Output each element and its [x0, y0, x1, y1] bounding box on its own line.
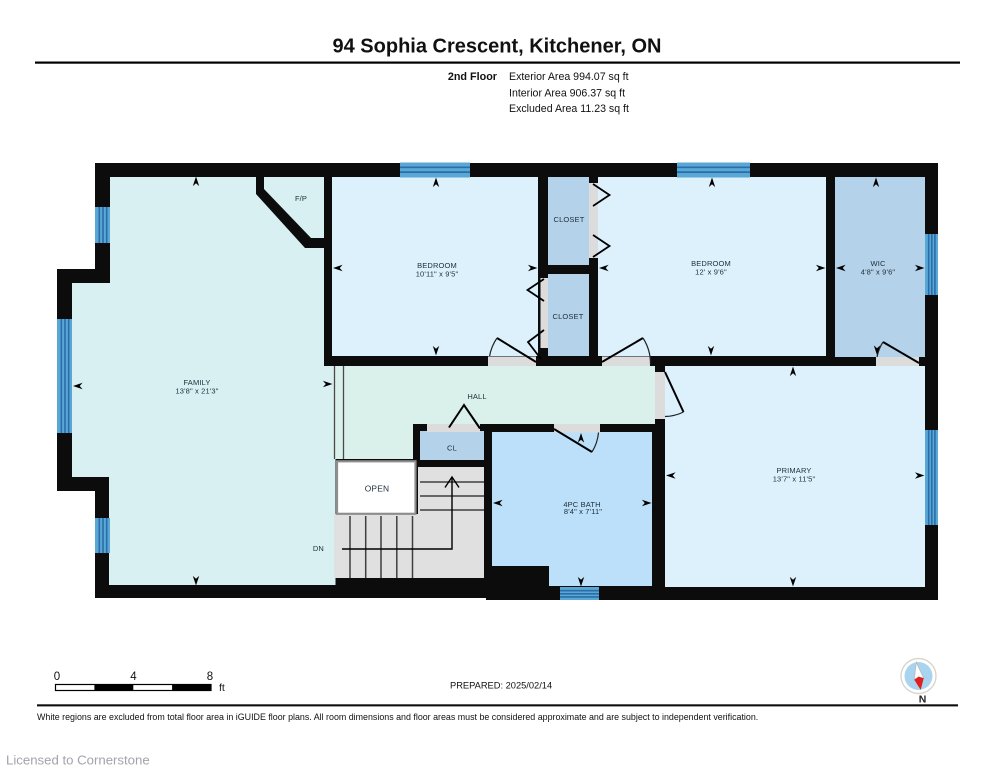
svg-text:94 Sophia Crescent, Kitchener,: 94 Sophia Crescent, Kitchener, ON — [333, 36, 662, 58]
svg-text:HALL: HALL — [467, 392, 486, 401]
svg-text:12' x 9'6": 12' x 9'6" — [695, 268, 727, 277]
svg-text:8'4" x 7'11": 8'4" x 7'11" — [564, 507, 602, 516]
svg-text:OPEN: OPEN — [365, 484, 390, 494]
svg-text:F/P: F/P — [295, 194, 307, 203]
svg-text:Licensed to Cornerstone: Licensed to Cornerstone — [6, 753, 150, 768]
svg-text:White regions are excluded fro: White regions are excluded from total fl… — [37, 712, 758, 722]
svg-text:PREPARED: 2025/02/14: PREPARED: 2025/02/14 — [450, 681, 552, 691]
svg-text:0: 0 — [54, 671, 60, 683]
svg-text:DN: DN — [313, 544, 324, 553]
svg-text:4: 4 — [130, 671, 137, 683]
svg-text:4'8" x 9'6": 4'8" x 9'6" — [861, 268, 896, 277]
svg-text:Interior Area 906.37 sq ft: Interior Area 906.37 sq ft — [509, 88, 625, 100]
svg-text:CL: CL — [447, 444, 457, 453]
svg-text:N: N — [919, 694, 927, 706]
svg-text:ft: ft — [219, 682, 225, 694]
svg-text:13'7" x 11'5": 13'7" x 11'5" — [773, 475, 816, 484]
svg-text:CLOSET: CLOSET — [553, 312, 584, 321]
svg-text:2nd Floor: 2nd Floor — [448, 71, 498, 83]
svg-text:10'11" x 9'5": 10'11" x 9'5" — [416, 270, 459, 279]
svg-text:CLOSET: CLOSET — [554, 215, 585, 224]
svg-text:Excluded Area 11.23 sq ft: Excluded Area 11.23 sq ft — [509, 103, 629, 115]
svg-text:13'8" x 21'3": 13'8" x 21'3" — [175, 387, 218, 396]
svg-text:Exterior Area 994.07 sq ft: Exterior Area 994.07 sq ft — [509, 71, 629, 83]
svg-text:8: 8 — [207, 671, 213, 683]
